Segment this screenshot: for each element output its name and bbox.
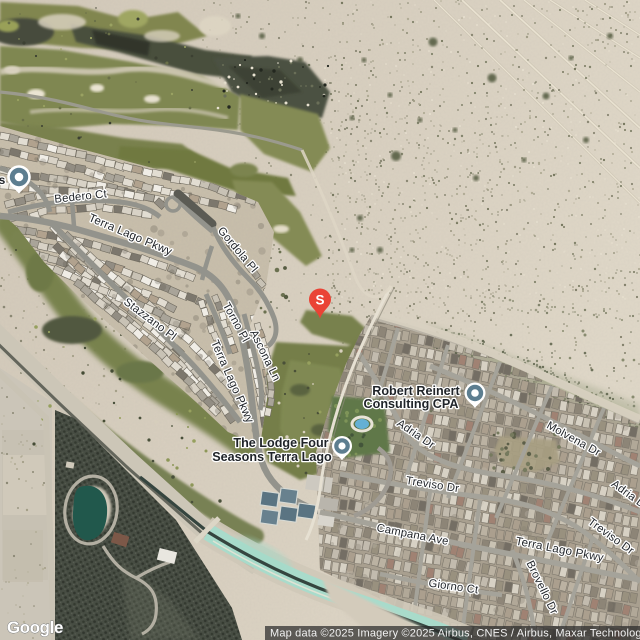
- svg-text:Google: Google: [7, 618, 63, 637]
- svg-text:s: s: [0, 173, 6, 187]
- svg-text:Map data ©2025 Imagery ©2025 A: Map data ©2025 Imagery ©2025 Airbus, CNE…: [270, 628, 640, 640]
- svg-text:Robert Reinert: Robert Reinert: [372, 384, 460, 398]
- svg-text:Seasons Terra Lago: Seasons Terra Lago: [212, 450, 332, 464]
- svg-text:The Lodge Four: The Lodge Four: [233, 436, 328, 450]
- svg-text:Consulting CPA: Consulting CPA: [364, 397, 459, 411]
- svg-text:S: S: [315, 293, 324, 308]
